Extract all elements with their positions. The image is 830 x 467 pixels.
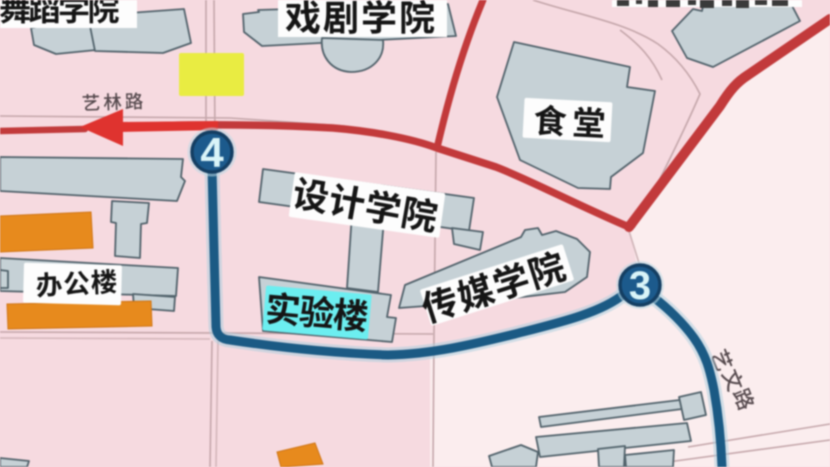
svg-text:4: 4 <box>200 129 224 176</box>
svg-text:3: 3 <box>629 264 651 308</box>
